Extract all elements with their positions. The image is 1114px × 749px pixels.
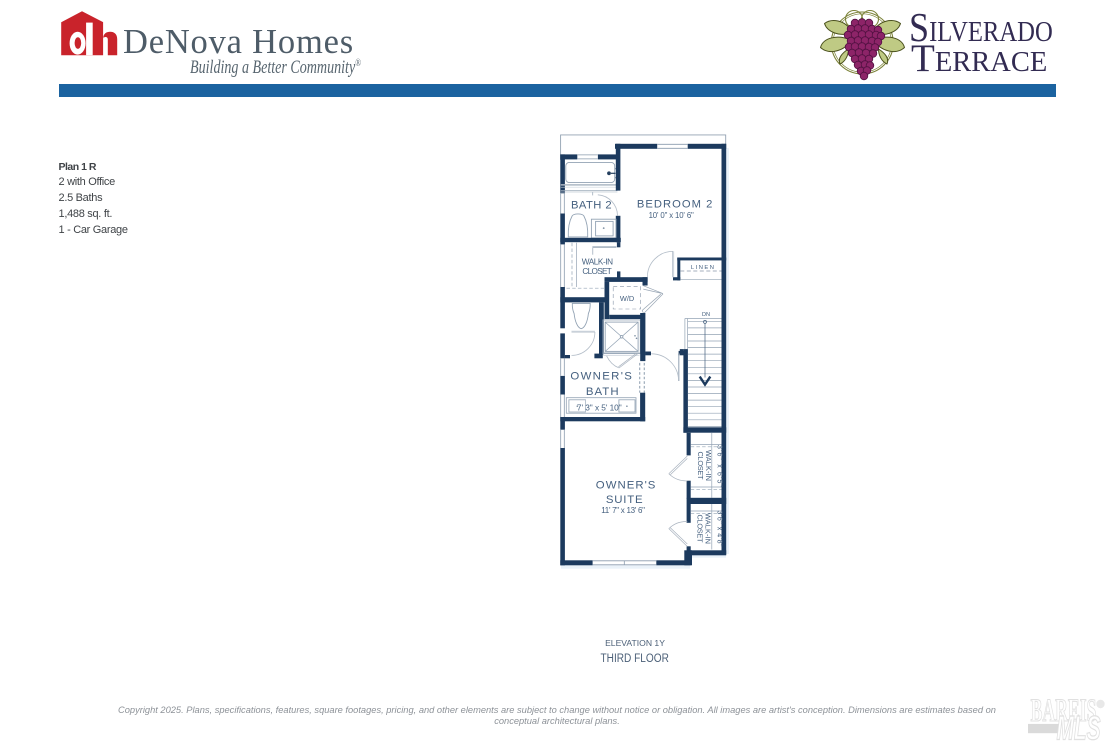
svg-text:W/D: W/D xyxy=(620,294,634,303)
svg-text:OWNER'S: OWNER'S xyxy=(596,479,656,491)
svg-text:BEDROOM 2: BEDROOM 2 xyxy=(637,198,713,210)
svg-text:SUITE: SUITE xyxy=(606,494,643,506)
svg-text:11' 7" x 13' 6": 11' 7" x 13' 6" xyxy=(601,506,645,515)
svg-text:OWNER'S: OWNER'S xyxy=(570,370,632,382)
svg-text:BATH 2: BATH 2 xyxy=(571,200,612,212)
svg-text:WALK-IN: WALK-IN xyxy=(582,258,613,267)
svg-text:BATH: BATH xyxy=(586,386,619,398)
svg-text:7' 3" x 5' 10": 7' 3" x 5' 10" xyxy=(577,403,622,413)
svg-text:CLOSET: CLOSET xyxy=(582,267,611,276)
svg-text:LINEN: LINEN xyxy=(691,265,714,271)
svg-text:DN: DN xyxy=(702,312,710,318)
svg-text:CLOSET: CLOSET xyxy=(696,452,705,480)
svg-text:CLOSET: CLOSET xyxy=(695,515,704,543)
svg-text:3'6" x 4'8": 3'6" x 4'8" xyxy=(716,511,723,548)
svg-text:3'6" x 6'5": 3'6" x 6'5" xyxy=(716,445,723,488)
svg-text:MLS: MLS xyxy=(1057,710,1101,748)
svg-text:10' 0" x 10' 6": 10' 0" x 10' 6" xyxy=(649,211,694,220)
